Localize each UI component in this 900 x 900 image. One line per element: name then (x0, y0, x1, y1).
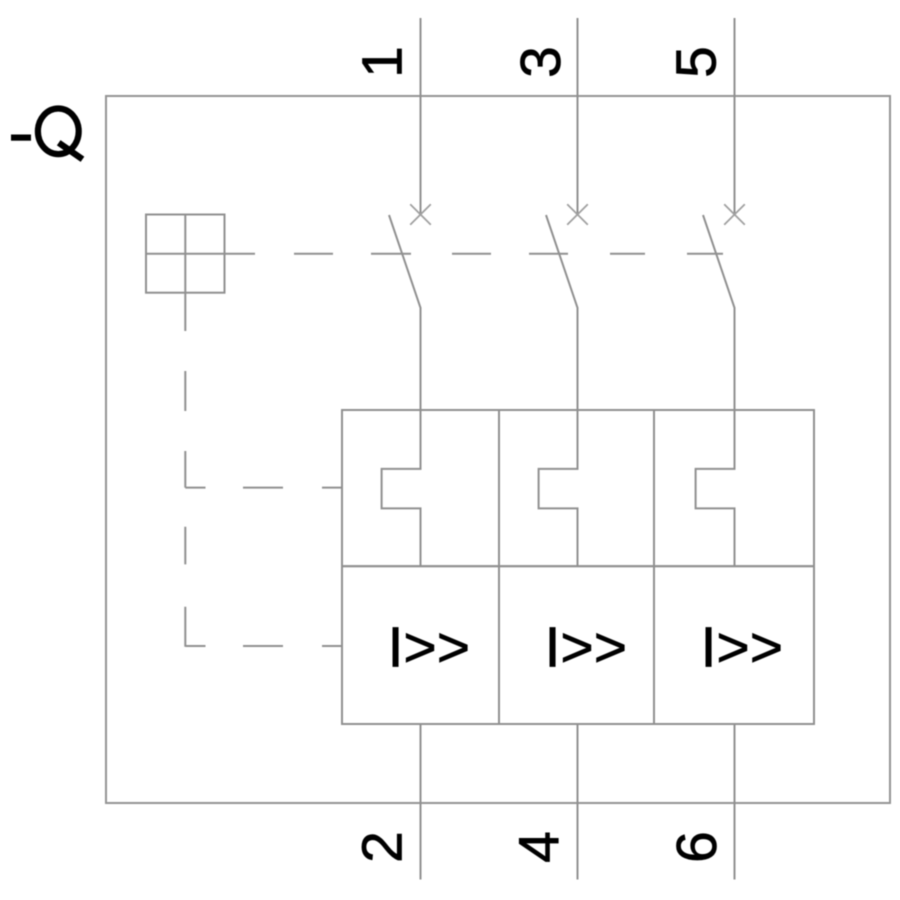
svg-text:5: 5 (665, 46, 729, 78)
svg-text:I>>: I>> (701, 616, 783, 680)
svg-text:6: 6 (665, 831, 729, 863)
svg-text:I>>: I>> (545, 616, 627, 680)
svg-text:4: 4 (508, 831, 572, 863)
svg-text:2: 2 (351, 831, 415, 863)
svg-text:1: 1 (351, 46, 415, 78)
svg-text:I>>: I>> (388, 616, 470, 680)
svg-text:3: 3 (509, 46, 573, 78)
